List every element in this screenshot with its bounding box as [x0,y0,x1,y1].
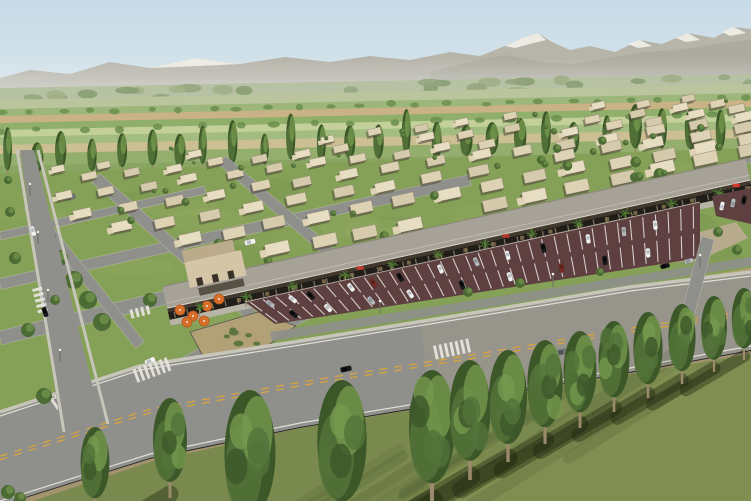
aerial-rendering-svg [0,0,751,501]
storefront-sign [502,234,509,238]
storefront-sign [733,184,740,188]
storefront-sign [357,266,364,270]
car [646,248,651,258]
car [653,220,658,230]
car [621,227,626,237]
aerial-rendering [0,0,751,501]
